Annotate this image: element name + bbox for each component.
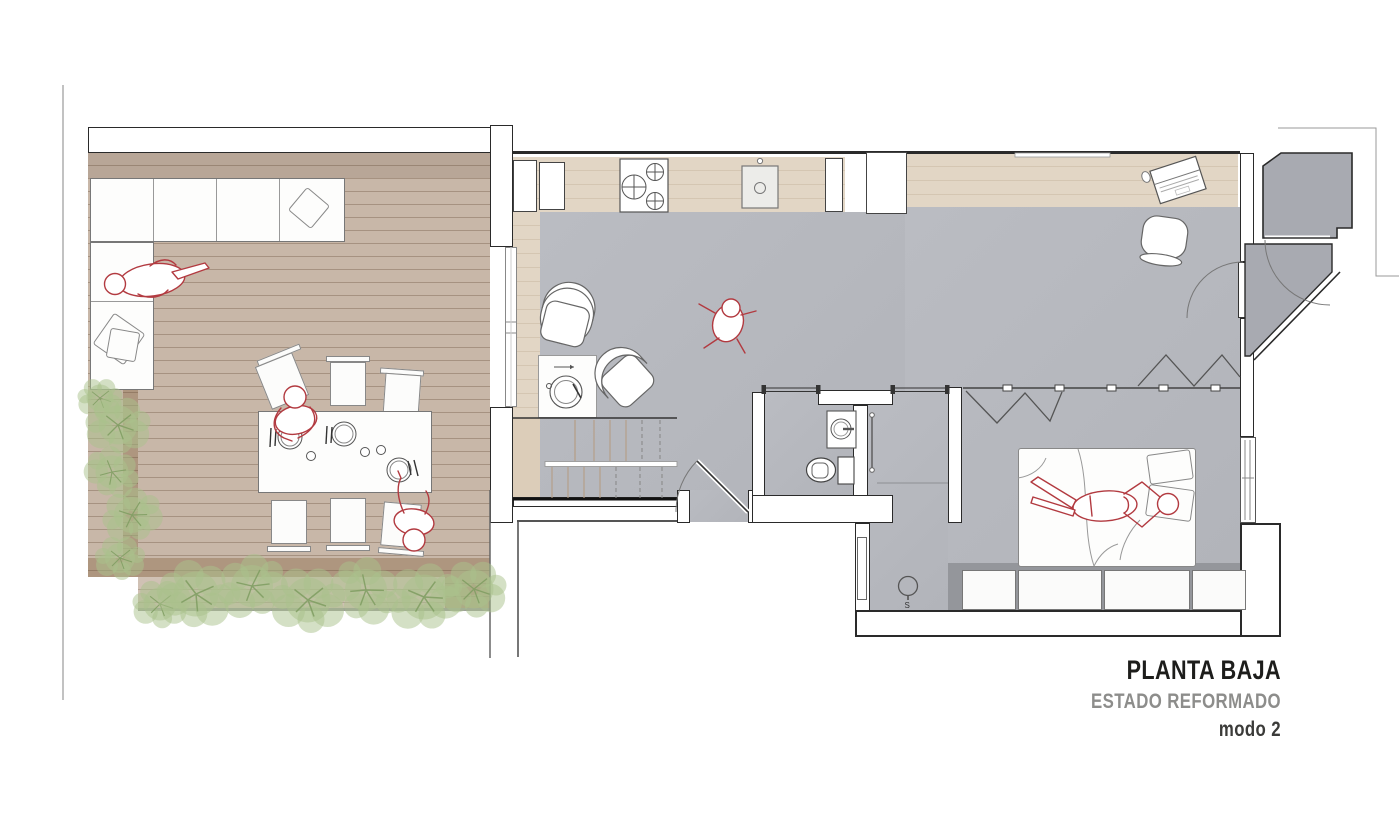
toilet-icon [807, 457, 855, 484]
bedroom-window-lines [1242, 440, 1254, 520]
kitchen-sink-icon [742, 158, 778, 208]
person-on-sofa-icon [105, 260, 210, 301]
shower-drain-icon: S [899, 577, 918, 611]
record-player-icon [547, 365, 583, 408]
terrace-glass-door-rails [505, 247, 517, 407]
plan-title: PLANTA BAJA [945, 656, 1281, 684]
shower-glass-screen [891, 386, 949, 394]
cooktop-icon [620, 159, 668, 212]
living-room-door [676, 461, 748, 512]
study-door-arc [1187, 262, 1243, 318]
title-block: PLANTA BAJA ESTADO REFORMADO modo 2 [861, 656, 1281, 741]
desk-chair [1138, 214, 1189, 268]
floor-plan-canvas: S [0, 0, 1400, 823]
bathroom-sliding-door [762, 386, 820, 394]
person-at-table-icon [392, 471, 435, 551]
entry-lobby [1245, 153, 1352, 360]
armchair [584, 337, 660, 413]
washbasin-icon [827, 411, 856, 448]
armchair [535, 277, 600, 350]
person-walking-icon [699, 299, 756, 353]
plan-mode-label: modo 2 [945, 719, 1281, 741]
plan-subtitle: ESTADO REFORMADO [945, 691, 1281, 713]
shower-glass-door [870, 413, 948, 483]
svg-text:S: S [905, 601, 910, 610]
stairs-icon [513, 418, 677, 499]
wardrobe-folding-doors [963, 355, 1240, 423]
person-on-bed-icon [1031, 477, 1179, 527]
desk-shelf [1015, 153, 1110, 157]
laptop-icon [1150, 156, 1206, 203]
